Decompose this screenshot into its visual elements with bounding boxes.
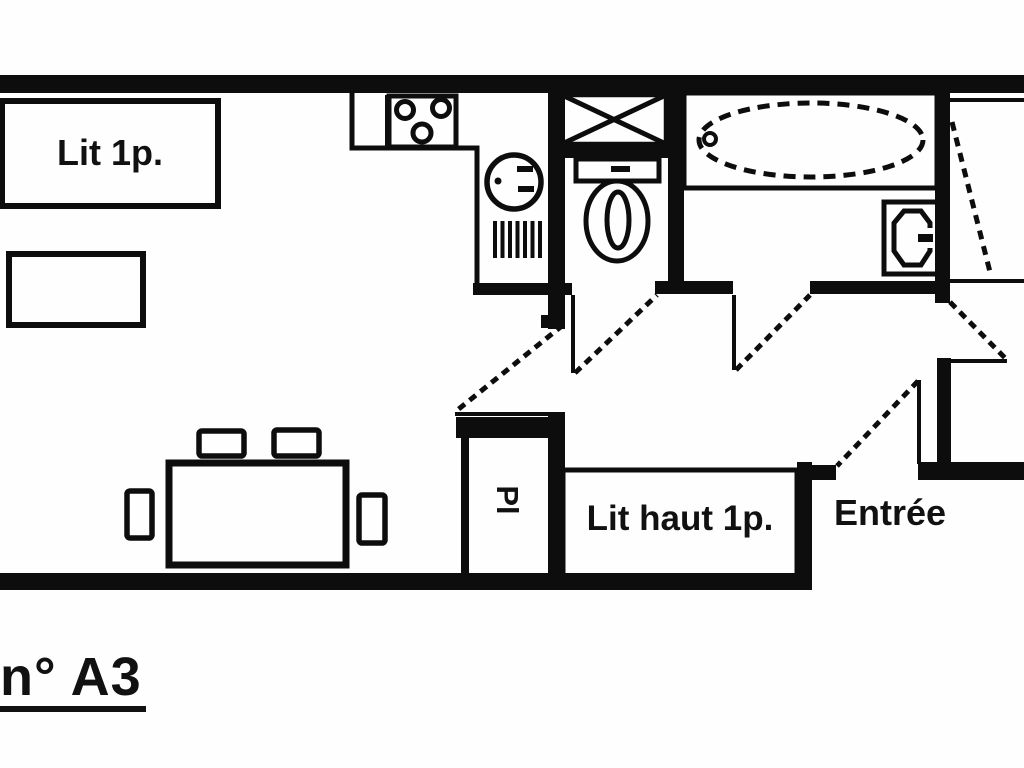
single-bed-label: Lit 1p.	[2, 135, 218, 171]
door-swing	[837, 380, 919, 466]
washing-machine-icon	[562, 95, 666, 144]
wall-segment	[473, 283, 572, 295]
wall-segment	[461, 438, 469, 577]
door-swings	[455, 295, 1007, 466]
wall-segment	[655, 281, 733, 294]
floorplan: Lit 1p. Pl Lit haut 1p. Entrée n° A3	[0, 0, 1024, 768]
wall-segment	[0, 75, 1024, 93]
chair	[274, 430, 319, 456]
stove-icon	[389, 96, 456, 147]
toilet-icon	[576, 159, 659, 261]
door-swing	[573, 295, 657, 373]
wall-segment	[456, 417, 552, 438]
right-room-lines	[948, 100, 1024, 281]
wall-segment	[810, 281, 937, 294]
loft-bed-label: Lit haut 1p.	[563, 501, 797, 536]
kitchen-sink-icon	[487, 155, 541, 209]
wall-segment	[918, 462, 1024, 480]
washbasin-icon	[884, 202, 938, 274]
door-swing	[734, 295, 810, 370]
wall-segment	[560, 145, 668, 158]
chair	[127, 491, 152, 538]
bathtub-icon	[684, 93, 937, 188]
door-swing	[455, 325, 563, 414]
floorplan-drawing	[0, 0, 1024, 768]
unit-number-label: n° A3	[0, 650, 146, 712]
dining-table	[169, 463, 346, 565]
drainboard-icon	[495, 221, 540, 258]
closet-label: Pl	[479, 475, 523, 525]
wall-segment	[937, 358, 951, 480]
chair	[199, 431, 244, 456]
entrance-label: Entrée	[820, 495, 960, 531]
wall-segment	[812, 465, 836, 480]
door-swing	[940, 302, 1007, 361]
small-table	[9, 254, 143, 325]
chair	[359, 495, 385, 543]
